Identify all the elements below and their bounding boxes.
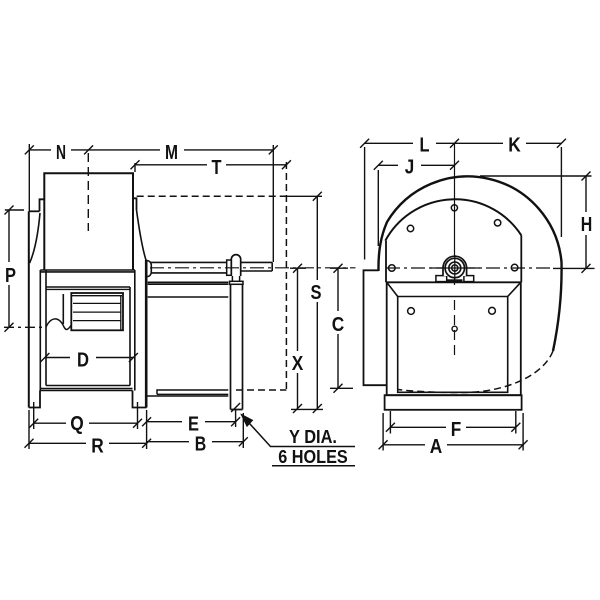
svg-text:D: D (77, 350, 89, 372)
svg-text:N: N (56, 142, 66, 164)
svg-text:S: S (311, 282, 322, 304)
svg-text:6 HOLES: 6 HOLES (278, 446, 348, 467)
svg-text:H: H (581, 214, 593, 236)
svg-text:B: B (195, 434, 207, 456)
svg-text:P: P (5, 265, 16, 287)
svg-text:J: J (405, 156, 415, 178)
svg-text:A: A (430, 436, 443, 458)
svg-text:Y DIA.: Y DIA. (289, 426, 337, 447)
svg-text:L: L (420, 134, 430, 156)
svg-text:T: T (212, 157, 222, 179)
svg-text:M: M (165, 142, 178, 164)
svg-text:K: K (508, 134, 521, 156)
svg-text:Q: Q (70, 413, 84, 435)
svg-text:F: F (451, 419, 462, 441)
svg-text:R: R (91, 435, 104, 457)
svg-text:X: X (292, 353, 304, 375)
svg-text:E: E (188, 414, 199, 436)
svg-text:C: C (332, 314, 345, 336)
